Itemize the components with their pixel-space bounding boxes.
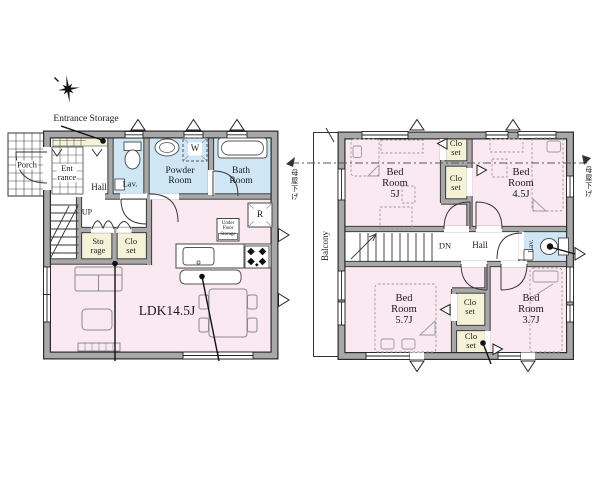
basin2-icon [524,250,533,261]
stairs-up [50,205,79,259]
floor-plan-drawing [0,0,600,478]
toilet2-icon [541,238,569,255]
kitchen-sink-icon [183,248,214,266]
closet-c-room [456,293,486,327]
closet-a-room [445,139,468,161]
hand-basin-icon [115,179,125,190]
storage-room [82,232,113,260]
balcony-outline [314,128,339,357]
powder-sink-icon [155,139,179,156]
bathtub-icon [218,138,267,158]
underfloor-storage-box [217,219,239,242]
closet-b-room [445,166,468,199]
floor-plan-page: Entrance Storage Porch Ent rance Hall La… [0,0,600,478]
island-counter [180,270,241,284]
first-floor-plan [8,120,289,362]
lav-door-arc [121,199,147,224]
toilet-icon [124,142,141,169]
entrance-tiles [52,147,83,194]
north-star-icon [55,75,80,103]
closet-room [117,232,148,260]
second-floor-plan [286,120,591,372]
stove-icon [245,246,269,268]
refrigerator-box [248,203,272,227]
